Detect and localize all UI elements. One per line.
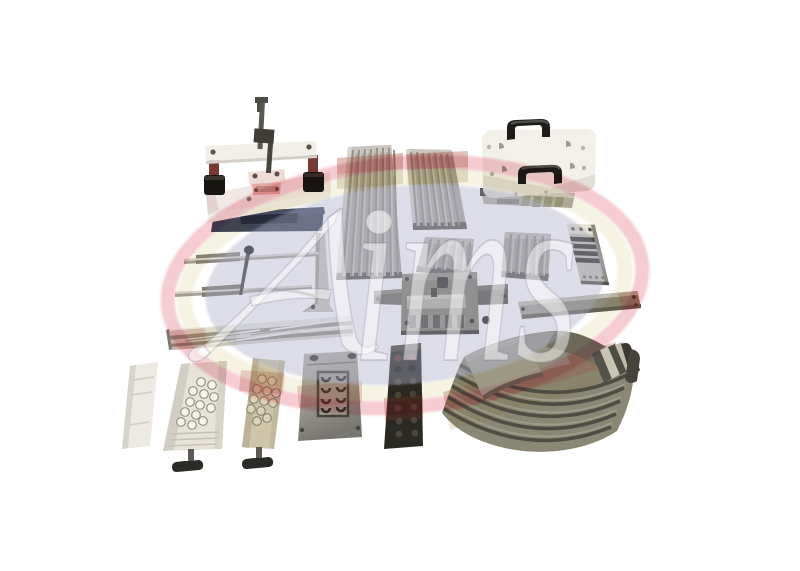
- svg-text:ıms: ıms: [352, 134, 579, 416]
